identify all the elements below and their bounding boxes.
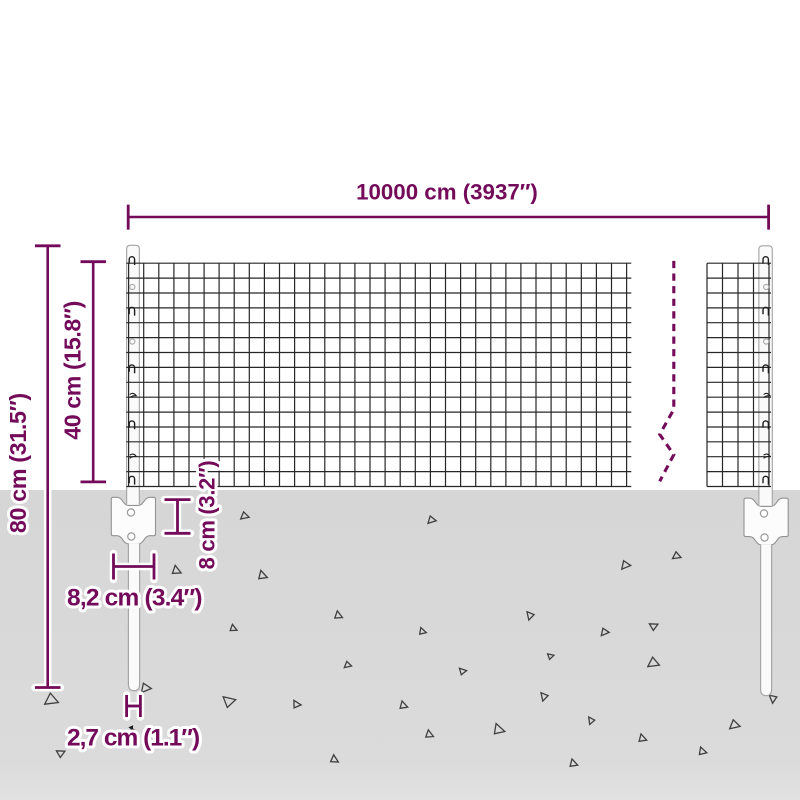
svg-text:8 cm (3.2″): 8 cm (3.2″)	[195, 461, 220, 570]
svg-text:8,2 cm (3.4″): 8,2 cm (3.4″)	[67, 585, 202, 612]
svg-text:10000 cm (3937″): 10000 cm (3937″)	[356, 180, 538, 205]
svg-text:40 cm (15.8″): 40 cm (15.8″)	[59, 301, 85, 440]
svg-text:80 cm (31.5″): 80 cm (31.5″)	[5, 393, 31, 533]
svg-text:2,7 cm (1.1″): 2,7 cm (1.1″)	[67, 725, 199, 752]
